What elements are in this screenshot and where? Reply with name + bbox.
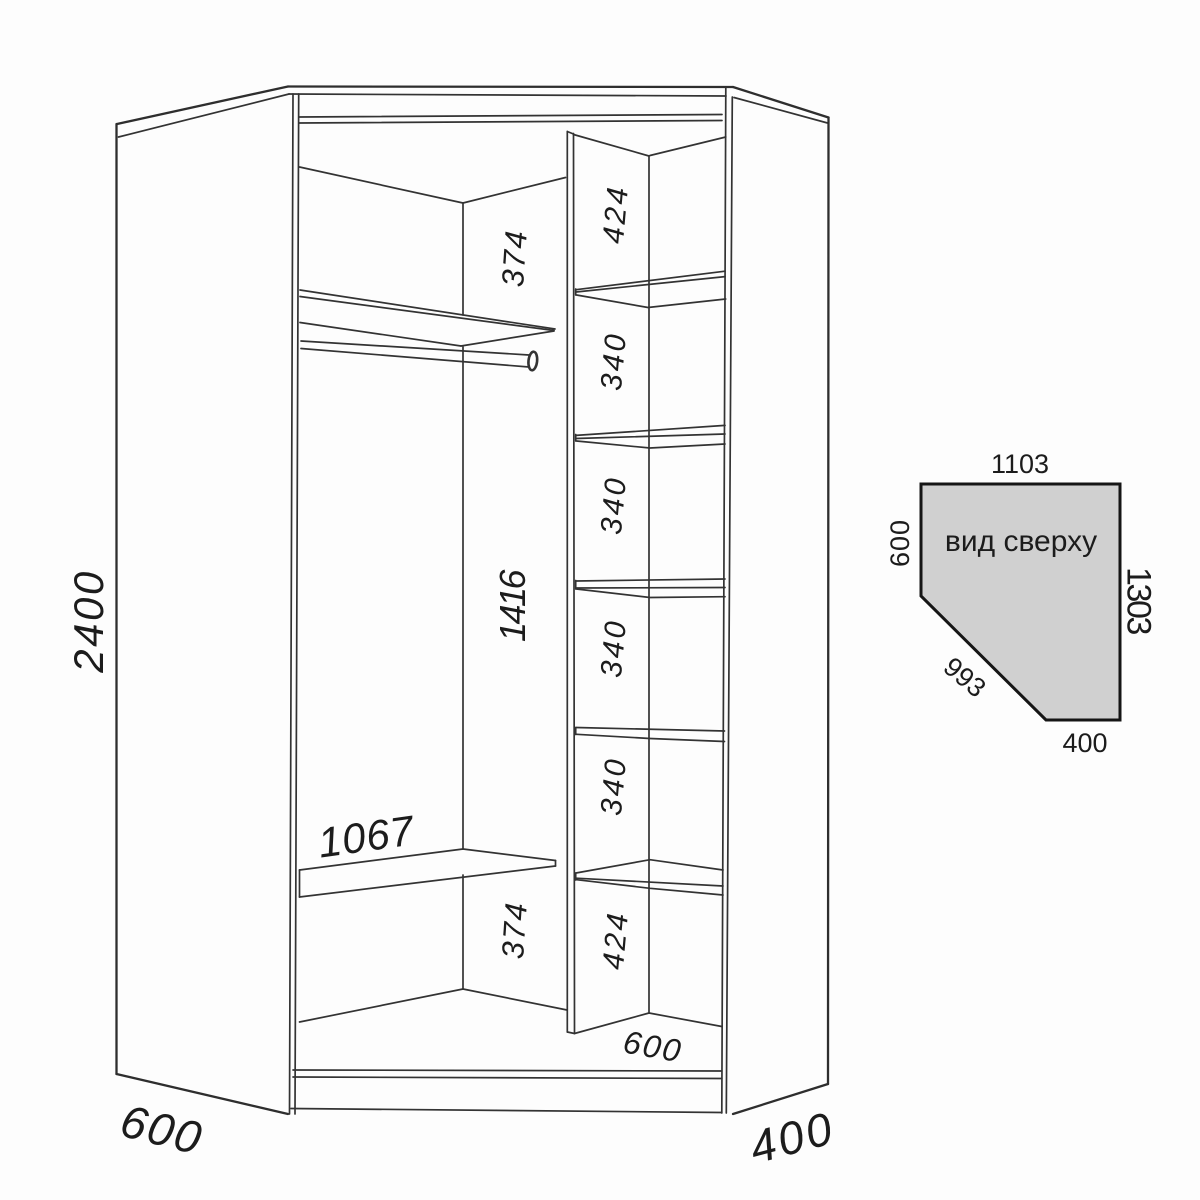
svg-text:374: 374 bbox=[495, 228, 534, 288]
svg-text:374: 374 bbox=[495, 900, 534, 960]
svg-text:424: 424 bbox=[597, 909, 635, 971]
svg-text:вид сверху: вид сверху bbox=[945, 525, 1097, 558]
svg-text:1303: 1303 bbox=[1120, 567, 1158, 635]
svg-text:1103: 1103 bbox=[991, 449, 1049, 479]
svg-text:600: 600 bbox=[885, 519, 915, 567]
svg-text:400: 400 bbox=[744, 1101, 840, 1173]
svg-text:400: 400 bbox=[1062, 728, 1107, 758]
svg-text:2400: 2400 bbox=[65, 569, 112, 673]
svg-text:1416: 1416 bbox=[492, 568, 533, 642]
svg-text:600: 600 bbox=[115, 1094, 208, 1164]
svg-text:424: 424 bbox=[597, 183, 635, 245]
svg-text:340: 340 bbox=[595, 617, 633, 679]
svg-text:340: 340 bbox=[595, 330, 633, 392]
svg-text:340: 340 bbox=[595, 474, 633, 536]
svg-text:600: 600 bbox=[621, 1024, 686, 1070]
svg-text:340: 340 bbox=[595, 755, 633, 817]
